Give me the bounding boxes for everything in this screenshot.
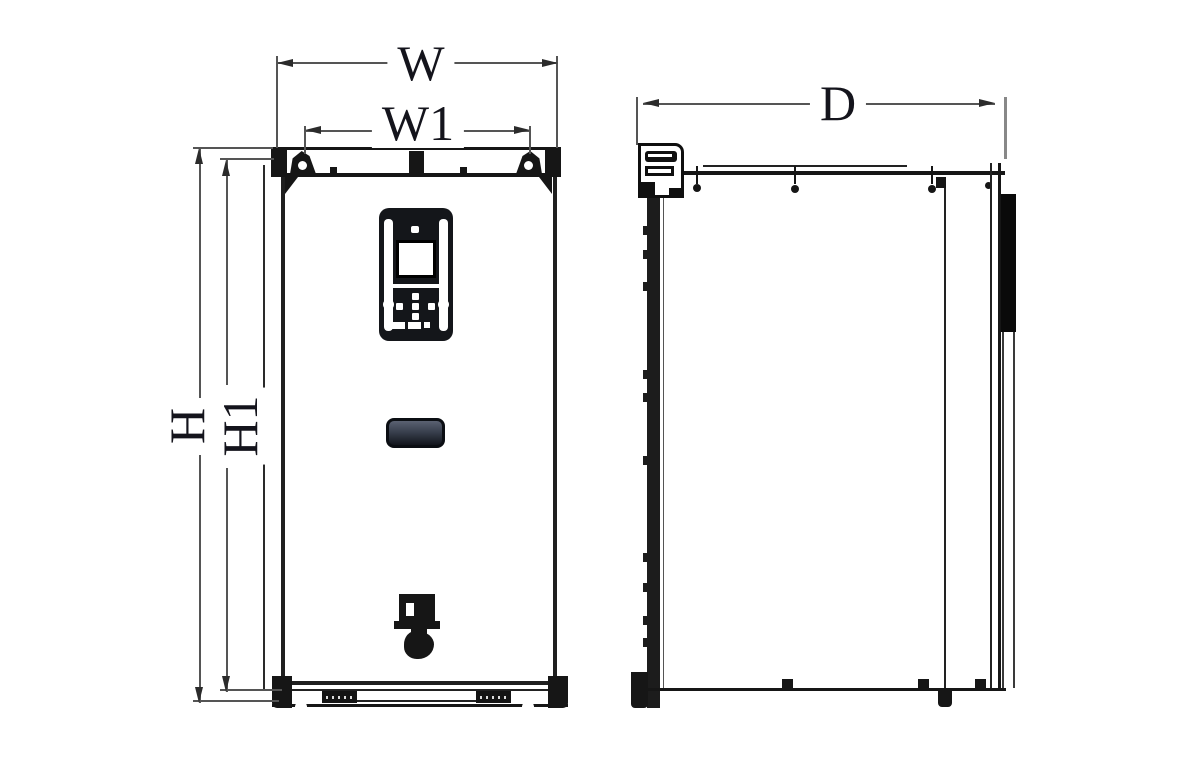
top-screw-tick <box>794 166 796 184</box>
dim-h1-line-upper <box>226 160 228 385</box>
top-plate-tick-right <box>460 167 467 174</box>
keypad-rail-right <box>439 219 448 331</box>
bracket-foot-right <box>669 188 681 195</box>
dim-h1-arrow-down <box>222 676 230 692</box>
lower-port-slot <box>406 603 414 616</box>
top-plate-left-block <box>271 149 287 177</box>
keypad-knob-left <box>383 299 394 310</box>
door-bump <box>643 616 648 625</box>
side-foot-front <box>631 672 648 708</box>
side-door-inner-line <box>663 177 664 688</box>
bracket-clip-slit <box>648 154 672 157</box>
dim-w1-label: W1 <box>372 98 464 148</box>
mounting-hole-left <box>298 161 307 170</box>
keypad <box>379 208 453 341</box>
dim-w-arrow-left <box>277 59 293 67</box>
dim-w-ext-left <box>276 56 278 148</box>
dim-h-ext-top <box>193 147 273 149</box>
base-vent-right <box>476 691 511 703</box>
mounting-hole-right <box>524 161 533 170</box>
door-bump <box>643 583 648 592</box>
keypad-button-up <box>412 293 419 300</box>
side-front-door-edge <box>647 150 660 708</box>
dim-h-arrow-down <box>195 687 203 703</box>
door-bump <box>643 553 648 562</box>
door-bump <box>643 393 648 402</box>
keypad-button-left <box>396 303 403 310</box>
top-screw <box>791 185 799 193</box>
top-screw <box>928 185 936 193</box>
base-vent-left <box>322 691 357 703</box>
dim-w1-arrow-right <box>514 126 530 134</box>
bracket-foot-left <box>641 182 655 195</box>
keypad-button-down <box>412 313 419 320</box>
door-bump <box>643 456 648 465</box>
vent-speckle <box>480 696 507 699</box>
keypad-divider-line <box>392 284 440 288</box>
bottom-tab <box>918 679 929 688</box>
dim-w-ext-right <box>556 56 558 148</box>
bottom-tab <box>782 679 793 688</box>
dim-h1-line-lower <box>226 468 228 692</box>
top-plate-right-block <box>545 149 561 177</box>
lower-port-box <box>399 594 435 624</box>
dim-h-label: H <box>158 400 216 452</box>
rear-edge-inner-line <box>990 163 992 690</box>
keypad-rail-left <box>384 219 393 331</box>
top-screw-tick <box>696 166 698 184</box>
side-panel-seam-block <box>936 177 946 188</box>
keypad-knob-right <box>438 299 449 310</box>
dim-d-label: D <box>810 78 866 128</box>
side-foot-rear <box>938 691 952 707</box>
door-bump <box>643 638 648 647</box>
heatsink-rail-left <box>1002 332 1004 688</box>
keypad-bottom-key-3 <box>424 322 430 328</box>
keypad-bottom-key-2 <box>408 322 421 329</box>
top-screw-tick <box>931 166 933 184</box>
dim-h-arrow-up <box>195 148 203 164</box>
dim-h-line-upper <box>199 148 201 398</box>
side-bottom-border <box>647 688 1006 691</box>
nameplate <box>386 418 445 448</box>
door-bump <box>643 282 648 291</box>
top-plate-tick-left <box>330 167 337 174</box>
top-screw <box>693 184 701 192</box>
keypad-bottom-key-1 <box>392 322 405 329</box>
door-bump <box>643 226 648 235</box>
dim-d-ext-left <box>636 97 638 145</box>
side-top-cover-line <box>703 165 907 167</box>
vent-speckle <box>326 696 353 699</box>
dim-d-arrow-right <box>979 99 995 107</box>
dim-h-line-lower <box>199 455 201 703</box>
keypad-button-right <box>428 303 435 310</box>
lcd-screen <box>396 240 436 278</box>
dim-d-arrow-left <box>643 99 659 107</box>
heatsink-rail-right <box>1013 332 1015 688</box>
side-panel-seam <box>944 177 946 688</box>
keypad-button-center <box>412 303 419 310</box>
bottom-tab <box>975 679 986 688</box>
dim-w-arrow-right <box>542 59 558 67</box>
top-plate-center-tab <box>409 151 424 175</box>
bracket-slot <box>645 166 674 176</box>
door-bump <box>643 250 648 259</box>
dim-h1-label: H1 <box>211 387 269 464</box>
base-slot-line <box>357 700 476 702</box>
nameplate-face <box>389 421 442 445</box>
dim-h1-arrow-up <box>222 160 230 176</box>
side-keypad-bracket <box>638 143 684 198</box>
dim-d-ext-right <box>1004 97 1007 159</box>
side-top-border <box>648 171 1005 175</box>
dim-h-ext-bottom <box>193 700 279 702</box>
dim-w-label: W <box>387 38 454 88</box>
keypad-status-led <box>411 226 419 233</box>
base-notch-left <box>295 701 307 709</box>
heatsink-band <box>1001 194 1016 332</box>
inverter-dimension-drawing: W W1 H H1 D <box>0 0 1200 770</box>
door-bump <box>643 370 648 379</box>
base-notch-right <box>522 701 534 709</box>
dim-w1-arrow-left <box>305 126 321 134</box>
